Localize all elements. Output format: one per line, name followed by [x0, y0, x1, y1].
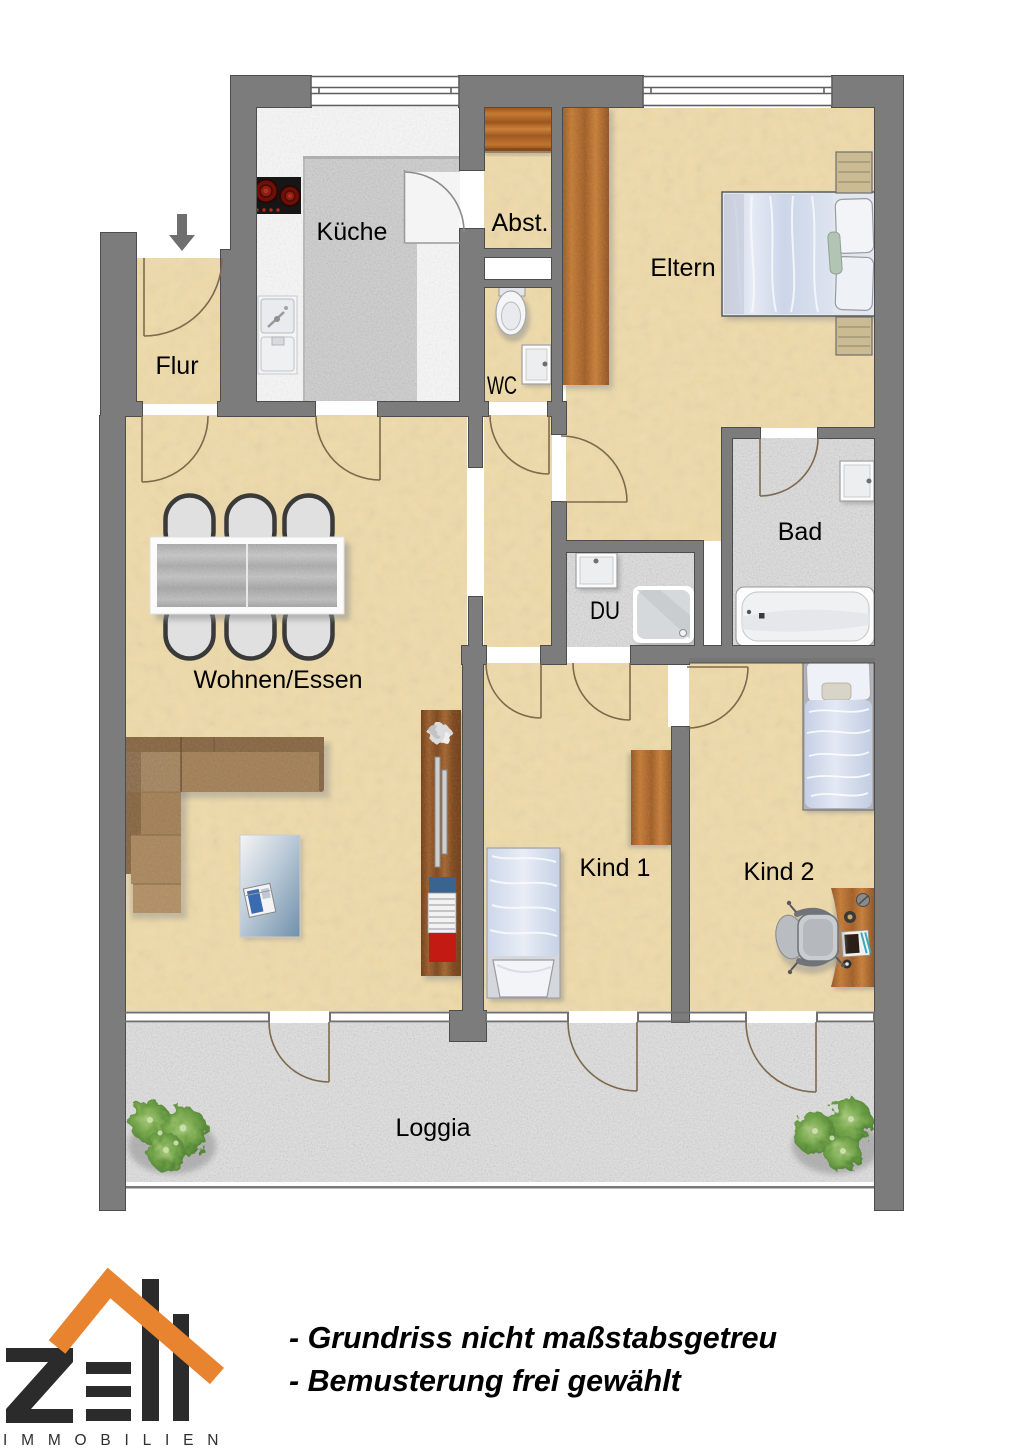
- svg-text:Bad: Bad: [778, 518, 822, 546]
- svg-text:Kind 1: Kind 1: [580, 854, 651, 882]
- svg-text:DU: DU: [590, 597, 620, 625]
- svg-text:Flur: Flur: [155, 352, 198, 380]
- svg-text:Wohnen/Essen: Wohnen/Essen: [193, 666, 362, 694]
- svg-text:Abst.: Abst.: [492, 209, 549, 237]
- svg-text:Kind 2: Kind 2: [744, 858, 815, 886]
- svg-text:Küche: Küche: [317, 218, 388, 246]
- svg-text:Eltern: Eltern: [650, 254, 715, 282]
- svg-text:Loggia: Loggia: [395, 1114, 470, 1142]
- svg-text:- Grundriss nicht maßstabsgetr: - Grundriss nicht maßstabsgetreu: [289, 1321, 777, 1355]
- svg-text:IMMOBILIEN: IMMOBILIEN: [3, 1432, 232, 1449]
- svg-text:- Bemusterung frei gewählt: - Bemusterung frei gewählt: [289, 1364, 683, 1398]
- svg-text:WC: WC: [487, 372, 517, 400]
